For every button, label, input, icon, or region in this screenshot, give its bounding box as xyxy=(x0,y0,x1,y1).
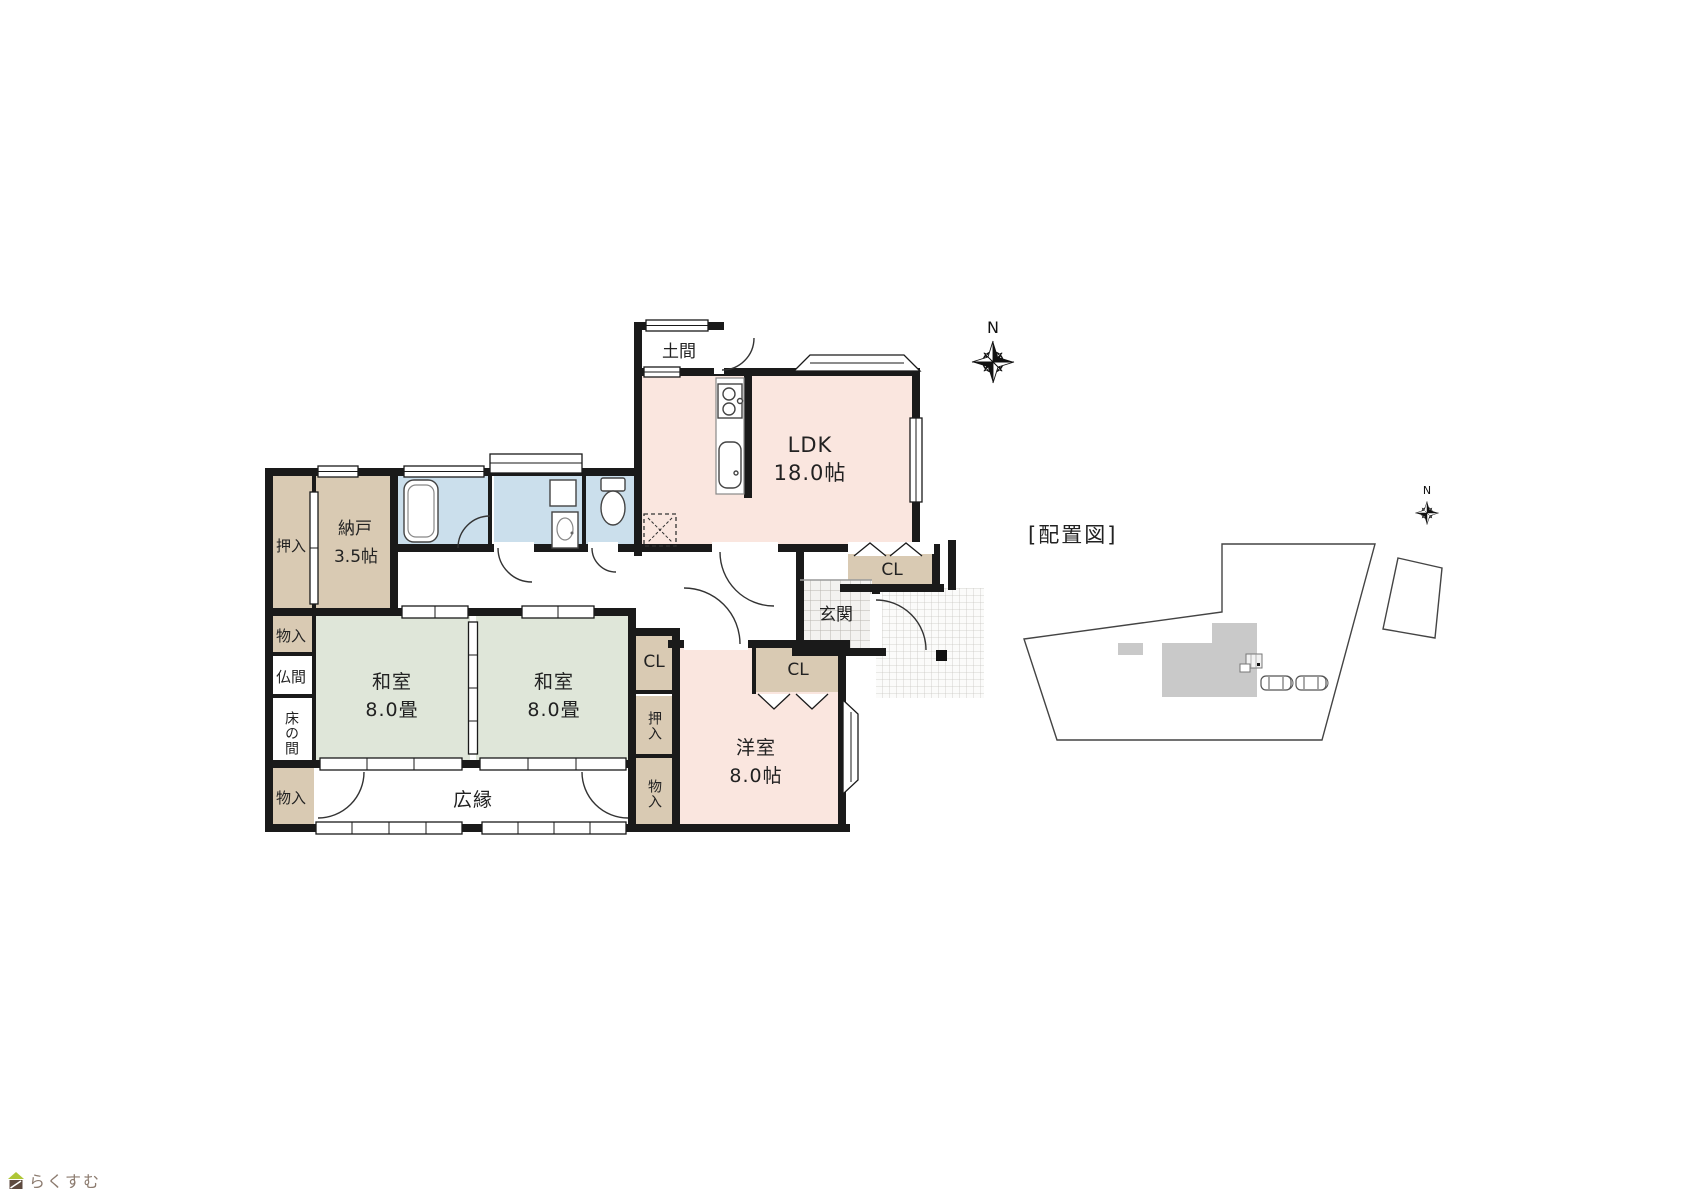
window-ldk-right xyxy=(910,418,922,502)
door-gap xyxy=(870,594,882,648)
compass-rose-icon xyxy=(972,341,1014,383)
shoji-washitsu-left-top xyxy=(402,606,468,618)
compass-small: N xyxy=(1415,484,1438,525)
window-hiroen-bottom-right xyxy=(482,822,626,834)
label-washitsu-left: 和室 xyxy=(372,671,412,693)
site-plan: [配置図] N xyxy=(1024,484,1442,740)
door-gap xyxy=(712,542,778,554)
door-gap xyxy=(494,542,534,554)
door-arc-yoshitsu xyxy=(684,588,740,644)
washbasin-icon xyxy=(552,512,578,548)
window-hiroen-bottom-left xyxy=(316,822,462,834)
window-under-doma xyxy=(644,367,680,377)
label-washitsu-right-size: 8.0畳 xyxy=(527,699,580,721)
compass-rose-icon xyxy=(1415,501,1438,524)
door-gap xyxy=(684,638,748,650)
logo: らくすむ xyxy=(8,1168,101,1190)
label-closet-yoshitsu: CL xyxy=(787,660,809,680)
fusuma-washitsu-divider xyxy=(469,622,478,754)
window-doma-top xyxy=(646,320,708,331)
entrance-porch-tiles xyxy=(876,588,984,698)
bay-window-washroom xyxy=(490,454,582,473)
door-arc-doma xyxy=(722,338,754,370)
label-oshiire-east: 押入 xyxy=(644,703,664,749)
site-plan-title: [配置図] xyxy=(1028,523,1117,547)
washing-machine-icon xyxy=(550,480,576,506)
shoji-washitsu-right-top xyxy=(522,606,594,618)
compass-main: N xyxy=(972,318,1014,383)
label-yoshitsu-size: 8.0帖 xyxy=(729,765,782,787)
label-nando: 納戸 xyxy=(338,519,372,539)
room-nando xyxy=(314,472,394,612)
label-nando-size: 3.5帖 xyxy=(334,547,378,567)
door-arc-ldk xyxy=(720,552,774,606)
shoji-hiroen-right xyxy=(480,758,626,770)
car-icon xyxy=(1296,676,1328,690)
stove-icon xyxy=(718,384,743,418)
label-butsuma: 仏間 xyxy=(276,668,306,686)
logo-text: らくすむ xyxy=(29,1168,101,1190)
shoji-hiroen-left xyxy=(320,758,462,770)
room-fills xyxy=(269,326,984,828)
compass-north-label: N xyxy=(987,318,999,337)
label-genkan: 玄関 xyxy=(819,605,853,625)
label-oshiire-nw: 押入 xyxy=(276,537,306,555)
label-yoshitsu: 洋室 xyxy=(736,737,776,759)
label-tokonoma: 床の間 xyxy=(281,703,301,763)
bathtub-icon xyxy=(404,480,438,542)
floor-plan-page: 土間 LDK 18.0帖 納戸 3.5帖 押入 物入 仏間 物入 和室 8.0畳… xyxy=(0,0,1684,1190)
outbuilding-footprint xyxy=(1118,643,1143,655)
logo-house-icon xyxy=(8,1172,24,1189)
label-ldk: LDK xyxy=(788,433,833,457)
window-bath xyxy=(404,466,484,477)
bay-window-ldk-top xyxy=(794,355,920,371)
floor-plan-drawing: 土間 LDK 18.0帖 納戸 3.5帖 押入 物入 仏間 物入 和室 8.0畳… xyxy=(0,0,1684,1190)
kitchen-sink-icon xyxy=(719,442,741,488)
label-washitsu-left-size: 8.0畳 xyxy=(365,699,418,721)
label-washitsu-right: 和室 xyxy=(534,671,574,693)
window-nando xyxy=(318,466,358,477)
compass-small-north-label: N xyxy=(1423,484,1431,497)
label-closet-hall: CL xyxy=(643,652,665,672)
label-hiroen: 広縁 xyxy=(453,789,493,811)
fusuma-oshiire-nw xyxy=(310,492,318,604)
toilet-icon xyxy=(601,478,625,525)
door-gap xyxy=(714,330,724,374)
car-icon xyxy=(1261,676,1293,690)
neighbor-lot-boundary xyxy=(1383,558,1442,638)
porch-post-marker xyxy=(936,650,947,661)
site-boundary xyxy=(1024,544,1375,740)
label-doma: 土間 xyxy=(662,342,696,362)
label-monoire-w-top: 物入 xyxy=(276,627,306,645)
label-monoire-w-bottom: 物入 xyxy=(276,789,306,807)
label-closet-entry: CL xyxy=(881,560,903,580)
label-ldk-size: 18.0帖 xyxy=(774,461,847,485)
bay-window-yoshitsu xyxy=(843,700,858,794)
label-monoire-east: 物入 xyxy=(644,768,664,820)
